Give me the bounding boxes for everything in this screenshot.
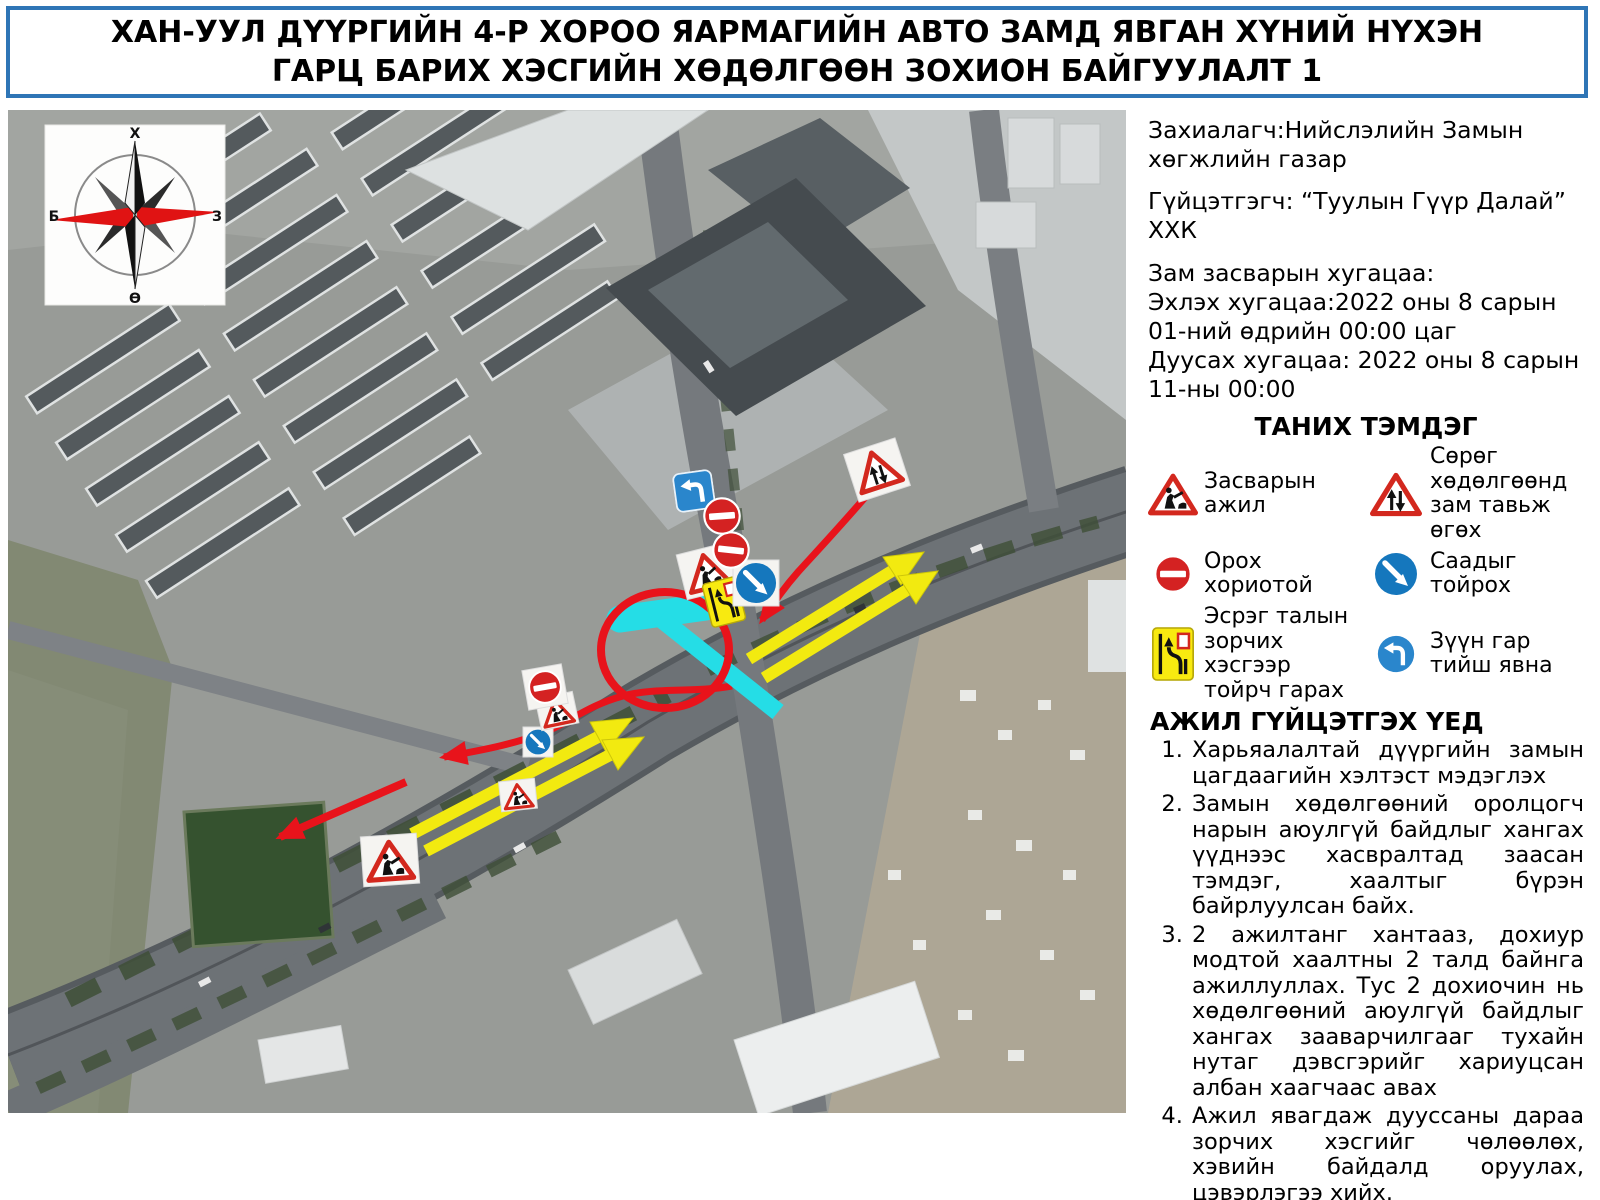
- legend-label-oncoming: Сөрөг хөдөлгөөнд зам тавьж өгөх: [1430, 445, 1584, 544]
- map-sign-no-entry-3: [522, 664, 568, 710]
- legend-label-no-entry: Орох хориотой: [1204, 550, 1362, 599]
- schedule-end: Дуусах хугацаа: 2022 оны 8 сарын 11-ны 0…: [1148, 346, 1584, 404]
- page-title: ХАН-УУЛ ДҮҮРГИЙН 4-Р ХОРОО ЯАРМАГИЙН АВТ…: [10, 13, 1584, 91]
- contractor-line: Гүйцэтгэгч: “Туулын Гүүр Далай” ХХК: [1148, 187, 1584, 245]
- oncoming-priority-sign-icon: [1368, 471, 1424, 518]
- compass-east-label: З: [212, 209, 222, 225]
- legend-label-opposite-lane: Эсрэг талын зорчих хэсгээр тойрч гарах: [1204, 605, 1362, 704]
- title-box: ХАН-УУЛ ДҮҮРГИЙН 4-Р ХОРОО ЯАРМАГИЙН АВТ…: [6, 6, 1588, 98]
- compass-rose: Х Ө Б З: [45, 125, 225, 307]
- map-sign-detour-2: [523, 727, 553, 757]
- traffic-plan-document: ХАН-УУЛ ДҮҮРГИЙН 4-Р ХОРОО ЯАРМАГИЙН АВТ…: [0, 0, 1600, 1200]
- detour-right-sign-icon: [1368, 552, 1424, 596]
- roadwork-sign-icon: [1148, 472, 1198, 517]
- opposite-lane-detour-sign-icon: [1148, 626, 1198, 682]
- legend-label-roadwork: Засварын ажил: [1204, 470, 1362, 519]
- map-sign-roadwork-3: [499, 778, 538, 812]
- keep-left-sign-icon: [1368, 635, 1424, 673]
- compass-west-label: Б: [49, 209, 60, 225]
- client-line: Захиалагч:Нийслэлийн Замын хөгжлийн газа…: [1148, 116, 1584, 174]
- map-sign-roadwork-4: [360, 833, 419, 887]
- no-entry-sign-icon: [1148, 555, 1198, 593]
- map-area: Х Ө Б З: [8, 110, 1126, 1113]
- worklist-item-2: Замын хөдөлгөөний оролцогч нарын аюулгүй…: [1190, 792, 1584, 920]
- info-panel: Захиалагч:Нийслэлийн Замын хөгжлийн газа…: [1132, 106, 1594, 1200]
- compass-north-label: Х: [130, 126, 141, 142]
- worklist-item-4: Ажил явагдаж дууссаны дараа зорчих хэсги…: [1190, 1104, 1584, 1200]
- legend-label-detour: Саадыг тойрох: [1430, 550, 1584, 599]
- legend: Засварын ажил Сөрөг хөдөлгөөнд зам тавьж…: [1148, 445, 1584, 703]
- compass-south-label: Ө: [129, 291, 141, 307]
- worklist: Харьяалалтай дүүргийн замын цагдаагийн х…: [1148, 738, 1584, 1200]
- satellite-map: Х Ө Б З: [8, 110, 1126, 1113]
- map-sign-no-entry-1: [703, 497, 741, 535]
- legend-label-keep-left: Зүүн гар тийш явна: [1430, 630, 1584, 679]
- schedule-start: Эхлэх хугацаа:2022 оны 8 сарын 01-ний өд…: [1148, 288, 1584, 346]
- legend-heading: ТАНИХ ТЭМДЭГ: [1148, 412, 1584, 441]
- map-sign-detour-1: [733, 560, 779, 606]
- worklist-item-1: Харьяалалтай дүүргийн замын цагдаагийн х…: [1190, 738, 1584, 789]
- worklist-heading: АЖИЛ ГҮЙЦЭТГЭХ ҮЕД: [1150, 707, 1584, 736]
- schedule-heading: Зам засварын хугацаа:: [1148, 259, 1584, 288]
- worklist-item-3: 2 ажилтанг хантааз, дохиур модтой хаалтн…: [1190, 923, 1584, 1102]
